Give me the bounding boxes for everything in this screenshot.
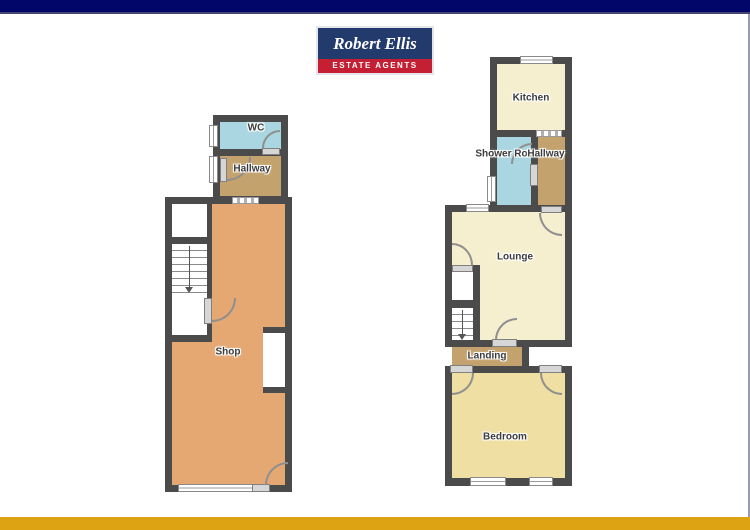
ff-stair-arrow-line xyxy=(462,310,463,334)
shop-recess xyxy=(263,333,285,387)
gf-hallway-door-leaf xyxy=(220,158,227,182)
bedroom-window-left xyxy=(470,477,506,486)
bedroom-left-door-leaf xyxy=(450,365,473,373)
hallway-shop-opening xyxy=(232,197,259,204)
bedroom-window-right xyxy=(529,477,553,486)
ff-hallway-room xyxy=(538,137,565,206)
shower-door-leaf xyxy=(530,164,538,186)
wc-door-leaf xyxy=(262,148,280,155)
landing-cupboard xyxy=(529,347,565,366)
ff-hallway-label: Hallway xyxy=(527,149,564,160)
hallway-lounge-door-leaf xyxy=(541,206,562,213)
landing-cupboard-wall xyxy=(522,343,529,366)
bedroom-label: Bedroom xyxy=(483,432,527,443)
gf-stair-arrow-down xyxy=(185,287,193,293)
landing-label: Landing xyxy=(468,351,507,362)
bedroom-right-door-leaf xyxy=(539,365,562,373)
wc-window xyxy=(209,125,218,147)
shower-room-window xyxy=(487,176,496,202)
floorplan-page: Robert Ellis ESTATE AGENTS WC H xyxy=(0,0,750,530)
gf-hallway-label: Hallway xyxy=(233,164,270,175)
ff-recess xyxy=(452,272,473,300)
agency-tagline: ESTATE AGENTS xyxy=(318,59,432,73)
bottom-border-bar xyxy=(0,517,750,530)
gf-recess xyxy=(172,204,207,237)
top-border-bar xyxy=(0,0,750,14)
kitchen-hallway-opening xyxy=(536,130,562,137)
shop-label: Shop xyxy=(216,347,241,358)
agency-logo: Robert Ellis ESTATE AGENTS xyxy=(318,28,432,73)
shop-front-door-leaf xyxy=(252,484,270,492)
kitchen-label: Kitchen xyxy=(513,93,550,104)
ff-stair-inner-wall xyxy=(473,265,480,340)
shop-front-window xyxy=(178,484,254,492)
agency-name: Robert Ellis xyxy=(318,28,432,59)
shop-inner-door-leaf xyxy=(204,298,212,324)
gf-stair-arrow-line xyxy=(189,246,190,287)
shop-recess-bottom-wall xyxy=(263,387,285,393)
wc-label: WC xyxy=(248,123,265,134)
lounge-window xyxy=(466,204,489,212)
lounge-label: Lounge xyxy=(497,252,533,263)
gf-stair-lobby xyxy=(172,295,207,335)
kitchen-window xyxy=(520,56,553,64)
gf-hallway-window xyxy=(209,156,218,183)
lounge-side-door-leaf xyxy=(452,265,473,272)
lounge-landing-door-leaf xyxy=(492,339,517,347)
shop-room-left-extension xyxy=(172,342,212,485)
